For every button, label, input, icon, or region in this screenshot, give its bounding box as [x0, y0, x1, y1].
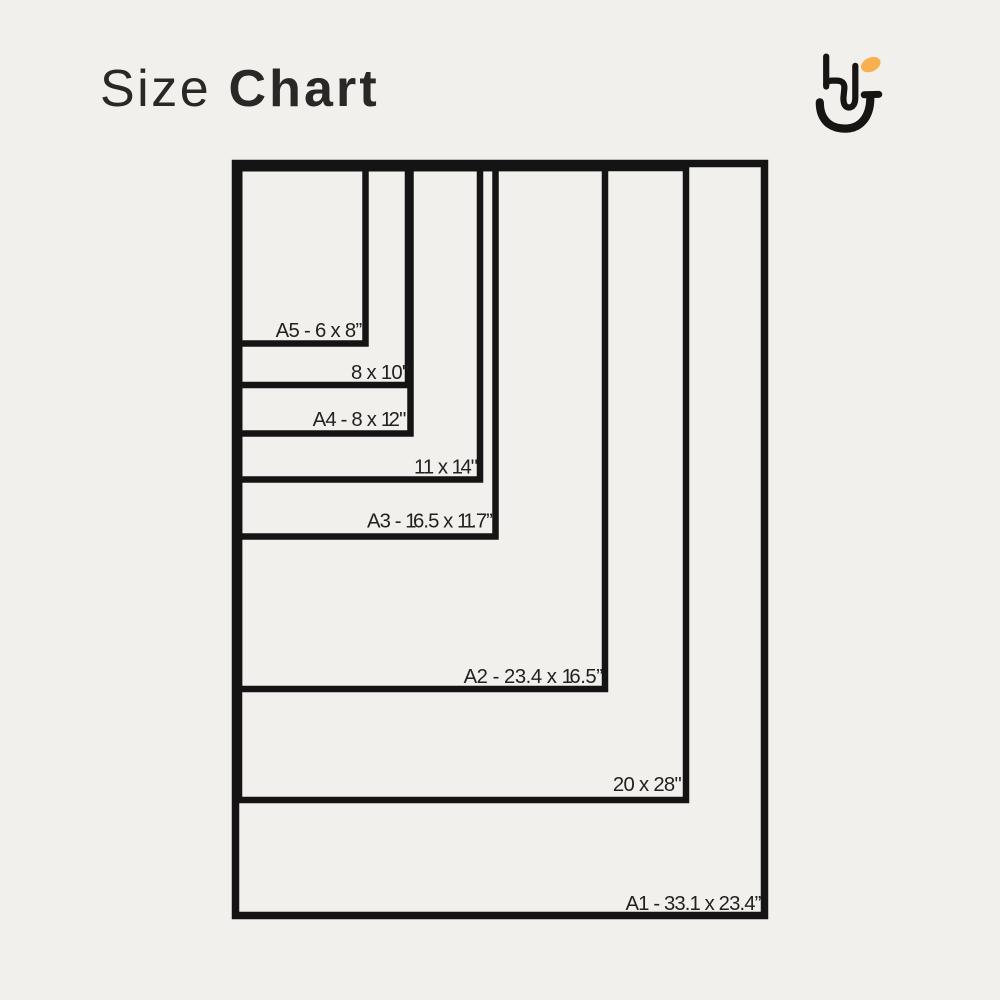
svg-text:A4 - 8 x 12": A4 - 8 x 12": [313, 409, 406, 431]
svg-text:A2 - 23.4 x 16.5”: A2 - 23.4 x 16.5”: [464, 666, 604, 688]
svg-text:20 x 28": 20 x 28": [613, 774, 682, 796]
svg-text:A5 - 6 x 8”: A5 - 6 x 8”: [276, 320, 363, 342]
svg-text:Chart: Chart: [229, 60, 380, 118]
svg-text:A1 - 33.1 x 23.4”: A1 - 33.1 x 23.4”: [626, 893, 762, 915]
svg-text:8 x 10": 8 x 10": [351, 362, 409, 384]
svg-text:Size: Size: [100, 60, 211, 118]
svg-text:11 x 14": 11 x 14": [414, 457, 478, 479]
svg-text:A3 - 16.5 x 11.7”: A3 - 16.5 x 11.7”: [367, 511, 493, 533]
